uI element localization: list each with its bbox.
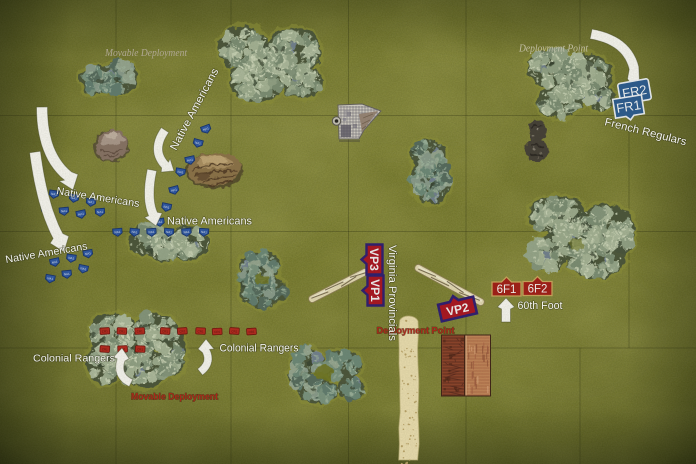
svg-text:CR1: CR1 (102, 329, 109, 333)
svg-text:CR1: CR1 (197, 329, 204, 333)
svg-text:Colonial Rangers: Colonial Rangers (220, 343, 299, 355)
svg-text:CR1: CR1 (137, 347, 144, 351)
svg-text:NA1: NA1 (131, 230, 138, 235)
svg-text:Deployment Point: Deployment Point (518, 44, 588, 55)
svg-text:NA1: NA1 (201, 230, 207, 234)
svg-text:NA1: NA1 (97, 210, 103, 214)
svg-text:CR1: CR1 (162, 329, 169, 333)
svg-text:Movable Deployment: Movable Deployment (104, 48, 188, 59)
svg-text:NA1: NA1 (68, 256, 75, 261)
svg-text:60th Foot: 60th Foot (518, 300, 563, 312)
svg-text:CR1: CR1 (231, 329, 238, 333)
svg-text:Movable Deployment: Movable Deployment (131, 392, 219, 403)
svg-text:CR1: CR1 (102, 347, 109, 351)
svg-text:VP3: VP3 (367, 248, 381, 271)
svg-text:Native Americans: Native Americans (167, 216, 252, 228)
svg-text:Virginia Provincials: Virginia Provincials (386, 245, 398, 342)
svg-text:CR1: CR1 (119, 329, 126, 333)
svg-text:NA1: NA1 (148, 230, 154, 234)
svg-text:NA1: NA1 (64, 272, 71, 277)
svg-text:6F2: 6F2 (528, 284, 548, 296)
svg-text:NA1: NA1 (166, 230, 172, 235)
svg-text:CR1: CR1 (179, 329, 186, 333)
svg-text:6F1: 6F1 (497, 284, 517, 296)
svg-text:CR1: CR1 (214, 330, 221, 334)
svg-text:CR1: CR1 (137, 329, 144, 333)
svg-text:CR1: CR1 (248, 330, 255, 334)
svg-text:Colonial Rangers: Colonial Rangers (33, 353, 115, 365)
svg-text:NA1: NA1 (61, 209, 68, 214)
svg-text:VP1: VP1 (368, 279, 382, 302)
svg-text:NA1: NA1 (183, 230, 190, 235)
svg-text:NA1: NA1 (114, 230, 120, 235)
